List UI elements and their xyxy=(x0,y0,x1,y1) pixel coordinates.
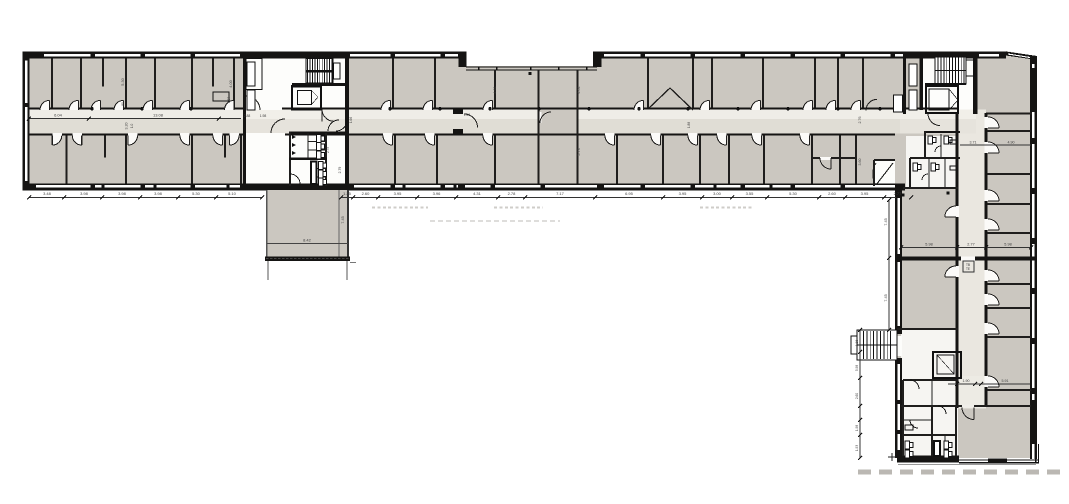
svg-text:3.00: 3.00 xyxy=(713,191,722,196)
svg-text:5.73: 5.73 xyxy=(577,148,581,155)
svg-text:3.55: 3.55 xyxy=(746,191,755,196)
svg-text:5.98: 5.98 xyxy=(925,243,932,247)
svg-text:2.79: 2.79 xyxy=(326,147,330,153)
svg-text:2.76: 2.76 xyxy=(858,117,862,124)
svg-text:3.60: 3.60 xyxy=(858,159,862,166)
svg-text:3.98: 3.98 xyxy=(118,191,127,196)
svg-text:8.42: 8.42 xyxy=(303,238,312,243)
svg-text:5.30: 5.30 xyxy=(789,191,798,196)
svg-text:1.66: 1.66 xyxy=(349,117,353,123)
svg-text:2.60: 2.60 xyxy=(362,191,371,196)
svg-text:2.60: 2.60 xyxy=(855,393,859,399)
svg-text:1.98: 1.98 xyxy=(260,114,267,118)
svg-text:5.98: 5.98 xyxy=(1004,243,1011,247)
svg-text:4.00: 4.00 xyxy=(229,80,233,87)
svg-text:5.98: 5.98 xyxy=(855,365,859,371)
svg-text:6.95: 6.95 xyxy=(625,191,634,196)
svg-text:4.31: 4.31 xyxy=(473,191,482,196)
svg-text:3.95: 3.95 xyxy=(679,191,688,196)
svg-text:1.98: 1.98 xyxy=(855,425,859,431)
svg-text:TE: TE xyxy=(966,267,970,271)
svg-text:1.88: 1.88 xyxy=(687,122,691,128)
svg-text:1.16: 1.16 xyxy=(855,340,859,346)
svg-text:3.95: 3.95 xyxy=(394,191,403,196)
svg-text:5.91: 5.91 xyxy=(1002,379,1009,383)
svg-text:3.98: 3.98 xyxy=(154,191,163,196)
svg-text:7.45: 7.45 xyxy=(884,218,888,225)
svg-text:4.61: 4.61 xyxy=(493,86,497,93)
svg-text:2.78: 2.78 xyxy=(508,191,517,196)
svg-text:1.93: 1.93 xyxy=(855,445,859,451)
svg-text:6.04: 6.04 xyxy=(54,113,63,118)
svg-text:2.77: 2.77 xyxy=(967,243,974,247)
svg-text:2.27: 2.27 xyxy=(227,97,231,103)
svg-text:7.17: 7.17 xyxy=(556,191,565,196)
svg-text:2.79: 2.79 xyxy=(338,167,342,174)
svg-text:3.71: 3.71 xyxy=(970,140,977,144)
svg-text:7.45: 7.45 xyxy=(884,294,888,301)
svg-text:5.10: 5.10 xyxy=(228,191,237,196)
svg-text:5.30: 5.30 xyxy=(121,78,125,85)
svg-text:80: 80 xyxy=(121,102,125,106)
svg-text:13.08: 13.08 xyxy=(153,113,164,118)
svg-text:1.25: 1.25 xyxy=(343,191,352,196)
svg-text:3.48: 3.48 xyxy=(43,191,52,196)
svg-text:1.90: 1.90 xyxy=(963,379,970,383)
svg-text:2.88: 2.88 xyxy=(244,114,251,118)
svg-text:1.50: 1.50 xyxy=(464,113,470,117)
svg-text:2.60: 2.60 xyxy=(828,191,837,196)
svg-text:1.0: 1.0 xyxy=(130,124,134,129)
svg-text:3.20: 3.20 xyxy=(125,123,129,130)
svg-text:2.77: 2.77 xyxy=(894,191,903,196)
svg-text:5.30: 5.30 xyxy=(192,191,201,196)
svg-text:3.96: 3.96 xyxy=(433,191,442,196)
svg-text:4.90: 4.90 xyxy=(1008,140,1015,144)
svg-text:3.98: 3.98 xyxy=(80,191,89,196)
svg-text:7.45: 7.45 xyxy=(341,216,345,223)
svg-text:4.01: 4.01 xyxy=(577,86,581,93)
svg-text:3.95: 3.95 xyxy=(861,191,870,196)
